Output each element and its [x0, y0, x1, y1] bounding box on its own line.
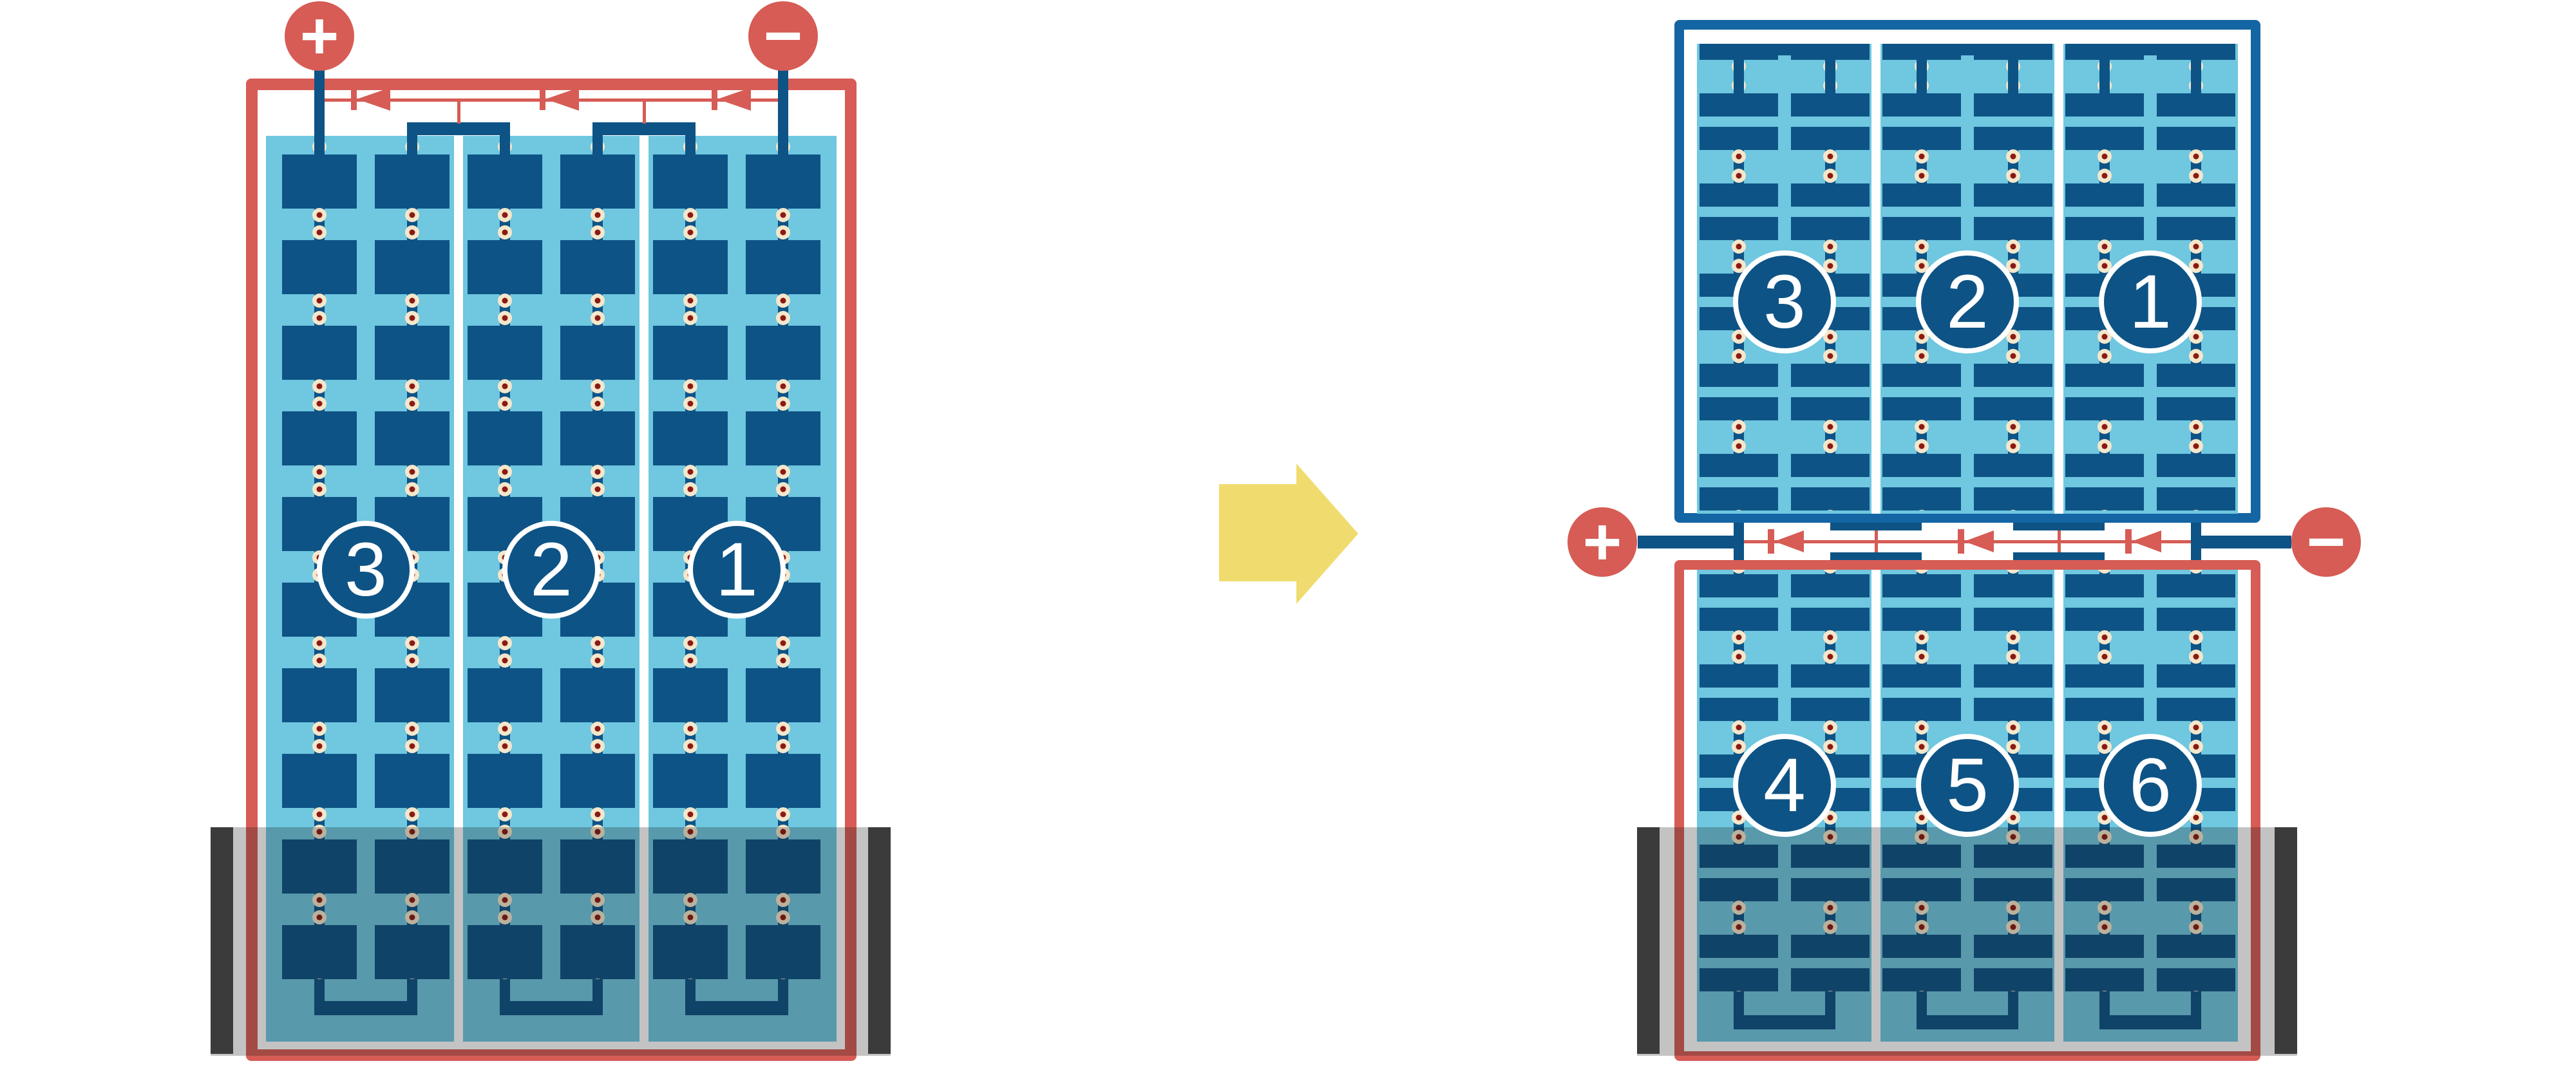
terminal-wire	[778, 64, 788, 156]
left-panel: + − 3 2 1	[0, 0, 1095, 1068]
transform-arrow-icon	[1219, 464, 1357, 604]
string-jumper	[407, 135, 417, 156]
string-number: 2	[530, 532, 573, 608]
string-number-badge: 1	[688, 521, 786, 619]
plus-symbol: +	[300, 3, 339, 70]
bypass-diode-icon	[351, 88, 357, 110]
string-number-badge: 3	[317, 521, 415, 619]
string-jumper	[407, 122, 510, 135]
terminal-wire	[314, 64, 325, 156]
string-number: 5	[1946, 747, 1989, 823]
bypass-diode-icon	[545, 88, 579, 111]
string-number-badge: 2	[502, 521, 600, 619]
string-number-badge: 5	[1916, 734, 2019, 837]
minus-terminal: −	[748, 1, 818, 71]
shadow-edge-bar	[868, 827, 891, 1054]
string-number: 6	[2129, 747, 2172, 823]
string-number-badge: 4	[1733, 734, 1836, 837]
diode-rail-tap	[643, 102, 646, 124]
bypass-diode-icon	[717, 88, 751, 111]
bypass-diode-icon	[540, 88, 545, 110]
shadow-overlay	[211, 827, 891, 1056]
right-bottom-module: 4 5 6	[1481, 0, 2576, 1068]
shadow-edge-bar	[1637, 827, 1660, 1054]
shadow-edge-bar	[211, 827, 233, 1054]
string-jumper	[685, 135, 696, 156]
string-jumper	[500, 135, 510, 156]
bypass-diode-icon	[712, 88, 717, 110]
shadow-edge-bar	[2275, 827, 2297, 1054]
diagram-canvas: + − 3 2 1	[0, 0, 2576, 1068]
string-jumper	[592, 122, 696, 135]
string-number: 3	[345, 532, 387, 608]
string-number-badge: 6	[2099, 734, 2202, 837]
bypass-diode-icon	[357, 88, 390, 111]
string-jumper	[592, 135, 603, 156]
minus-symbol: −	[764, 3, 803, 70]
plus-terminal: +	[285, 1, 354, 71]
string-number: 1	[715, 532, 758, 608]
string-number: 4	[1763, 747, 1806, 823]
diode-rail-tap	[457, 102, 460, 124]
shadow-overlay	[1637, 827, 2297, 1056]
